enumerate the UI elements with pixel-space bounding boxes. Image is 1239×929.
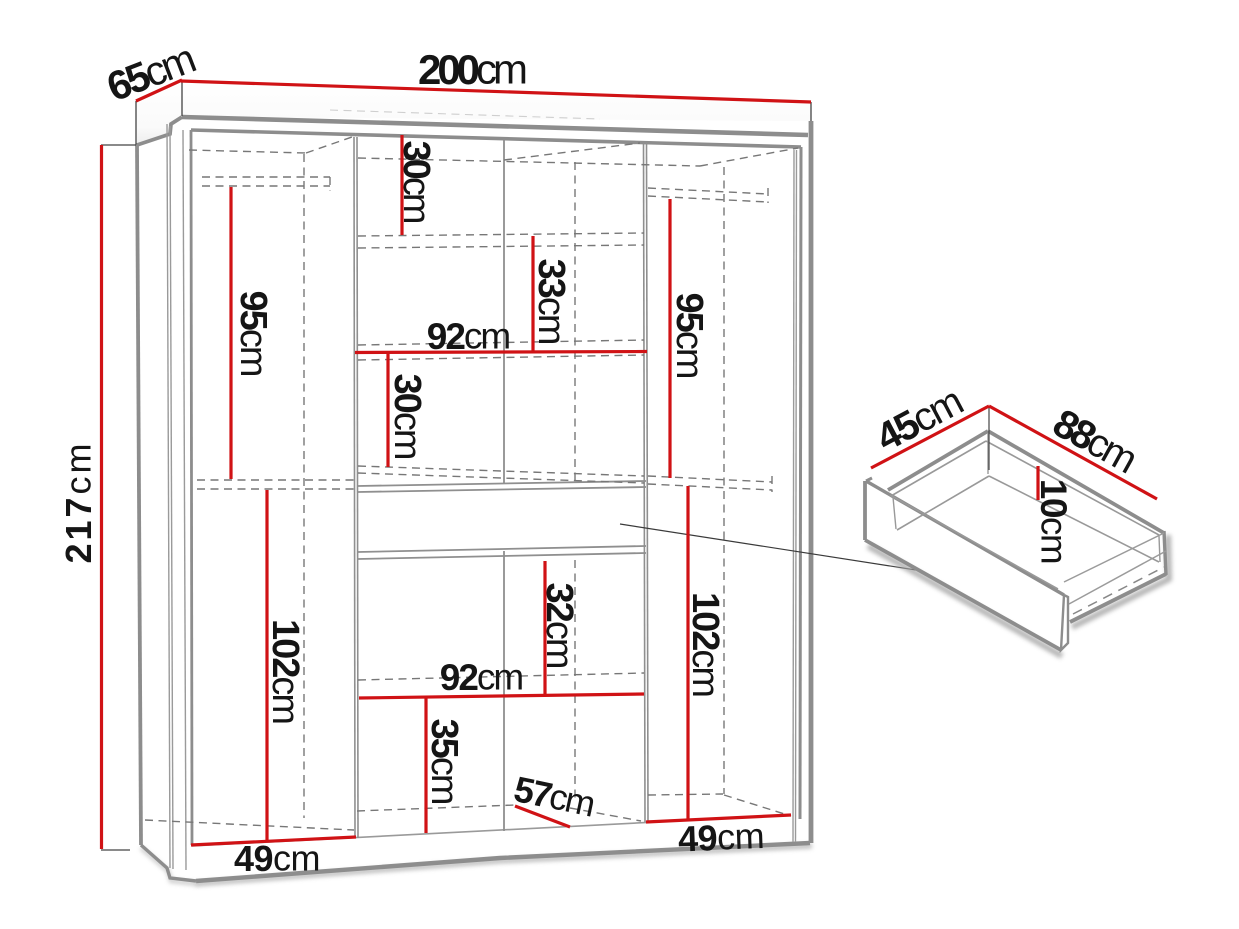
svg-text:30cm: 30cm — [386, 374, 428, 459]
svg-text:102cm: 102cm — [264, 619, 306, 723]
svg-text:217cm: 217cm — [58, 440, 99, 563]
svg-text:92cm: 92cm — [440, 657, 523, 698]
svg-text:49cm: 49cm — [234, 838, 320, 879]
svg-text:10cm: 10cm — [1034, 479, 1075, 563]
svg-text:49cm: 49cm — [677, 815, 764, 859]
svg-text:32cm: 32cm — [538, 583, 580, 668]
svg-text:200cm: 200cm — [418, 46, 526, 93]
svg-text:95cm: 95cm — [232, 291, 274, 376]
svg-text:45cm: 45cm — [869, 379, 969, 460]
svg-text:33cm: 33cm — [530, 259, 572, 344]
svg-text:95cm: 95cm — [668, 293, 710, 378]
svg-text:102cm: 102cm — [684, 592, 726, 696]
svg-text:57cm: 57cm — [511, 768, 598, 825]
svg-text:88cm: 88cm — [1046, 401, 1143, 481]
svg-text:30cm: 30cm — [395, 141, 437, 223]
svg-text:35cm: 35cm — [423, 719, 465, 804]
svg-text:92cm: 92cm — [427, 316, 510, 357]
